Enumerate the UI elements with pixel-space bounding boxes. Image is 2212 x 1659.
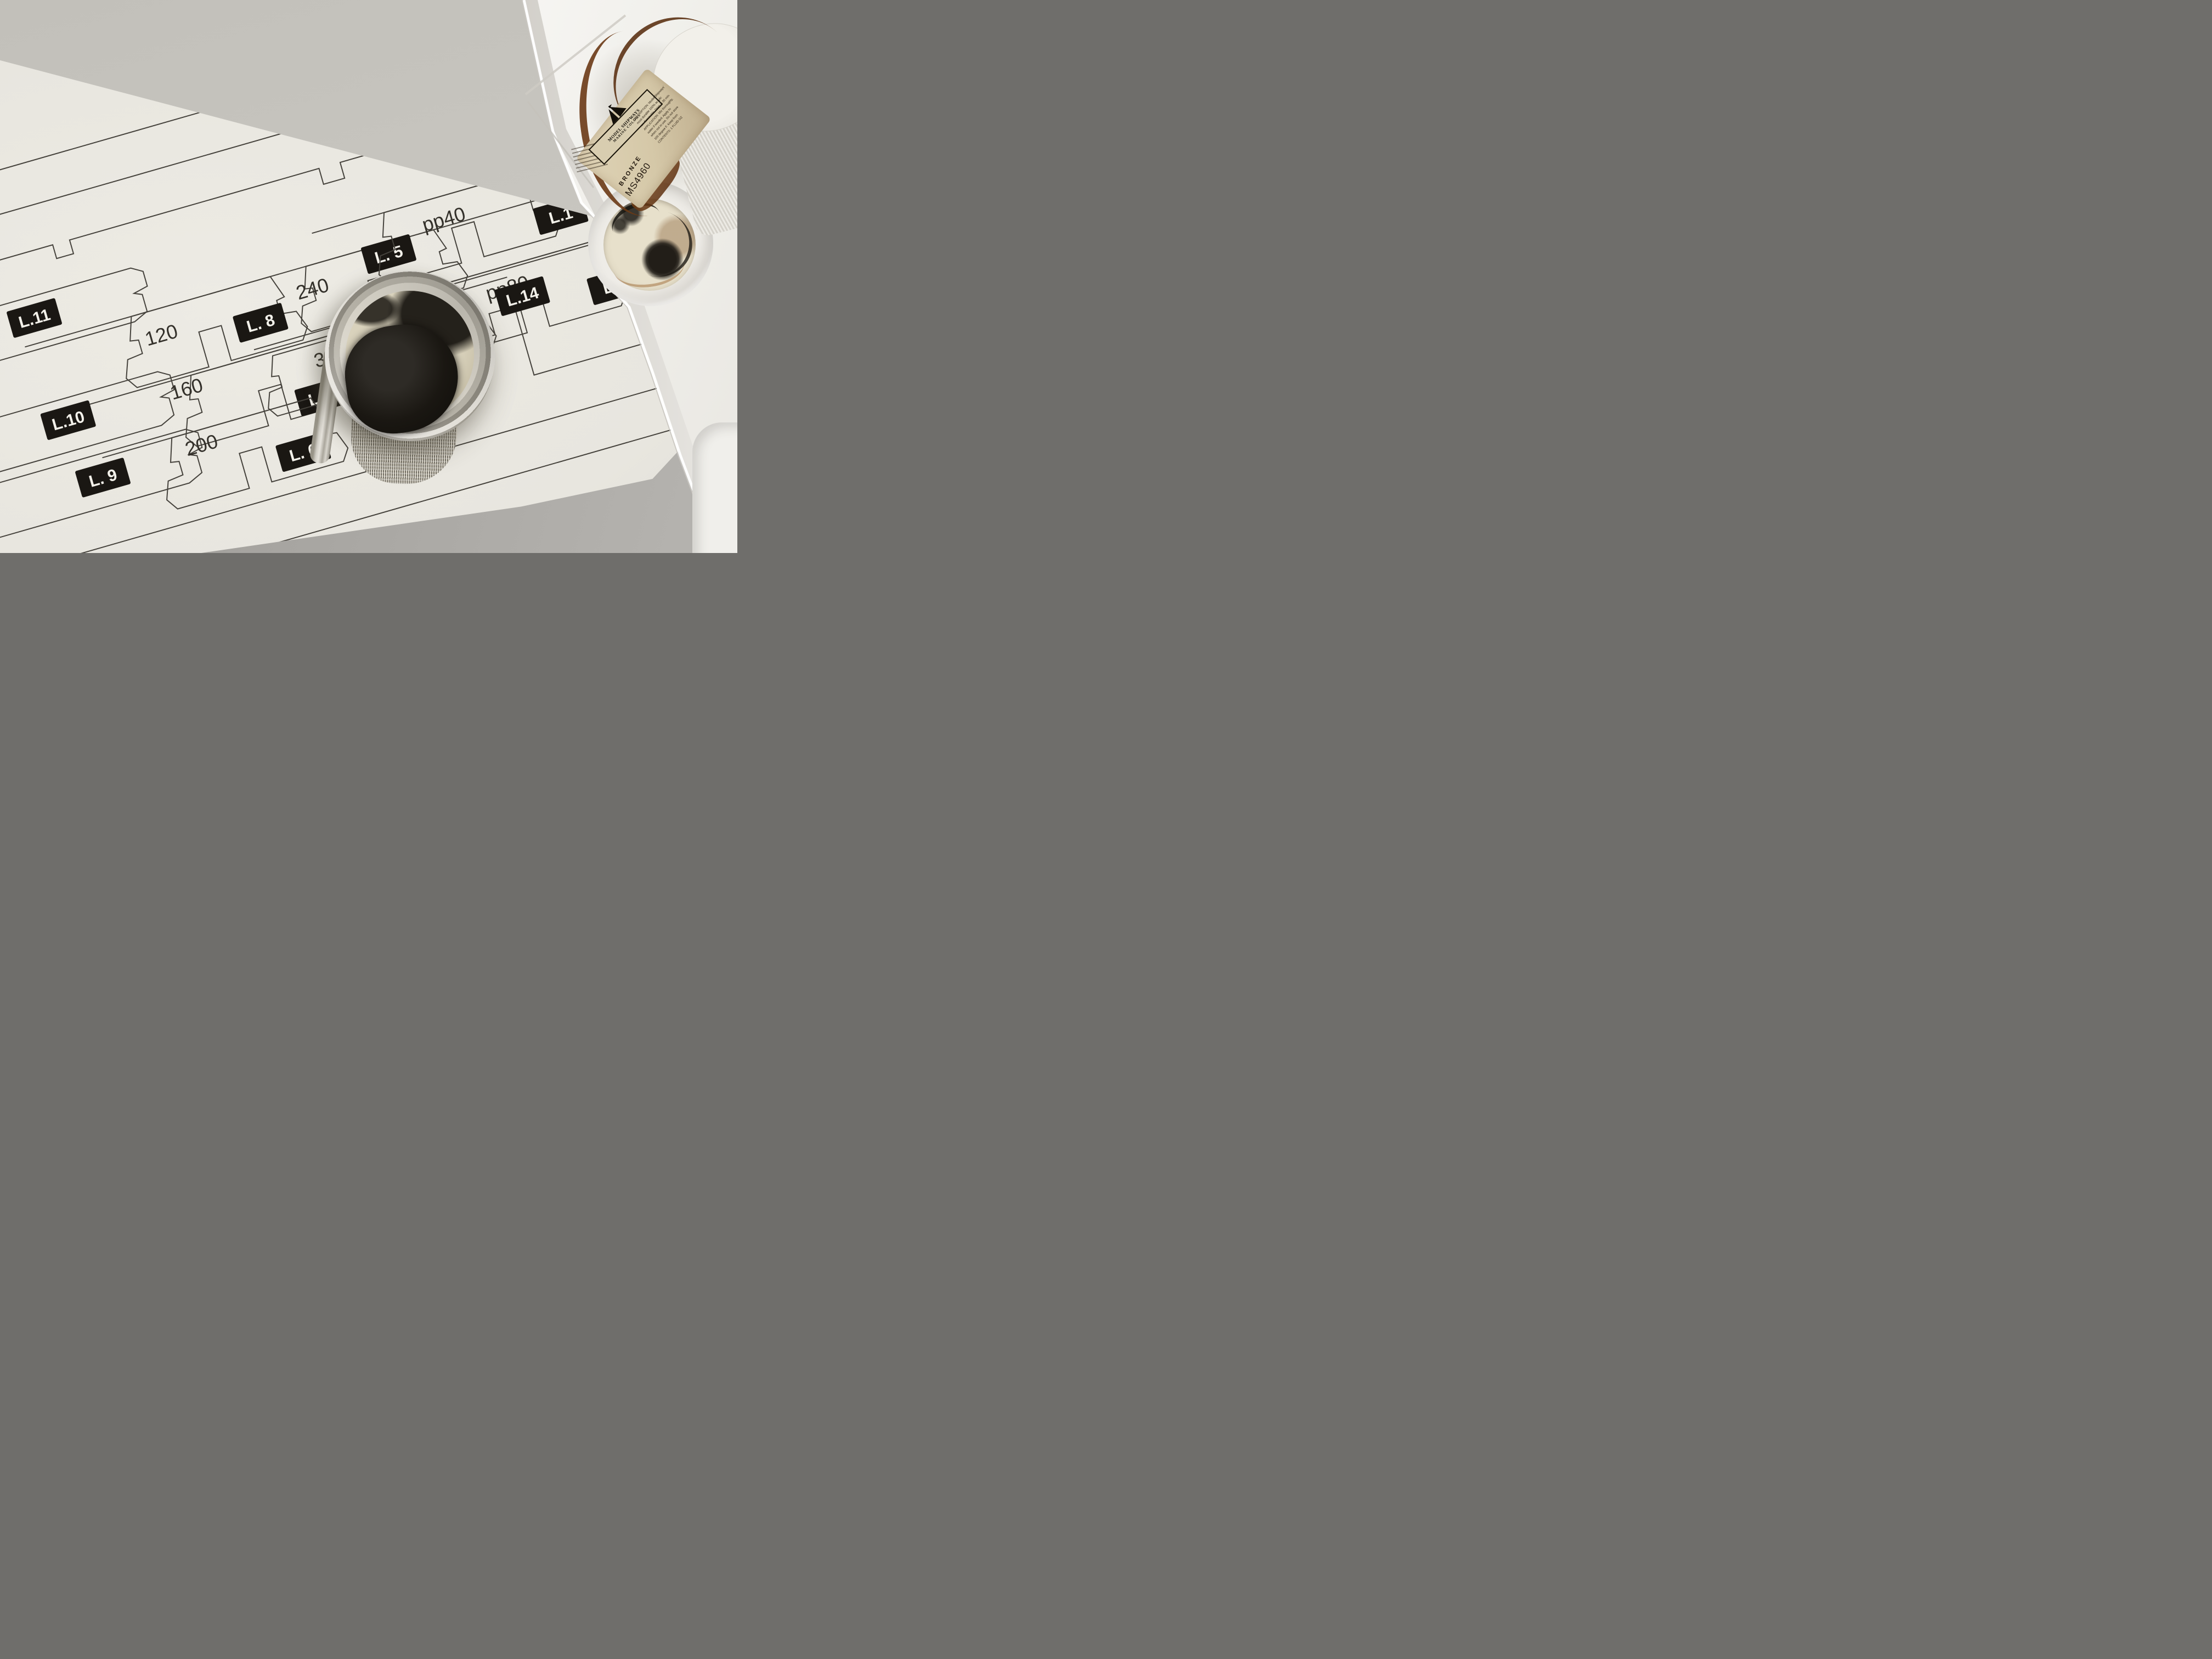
black-paint-jar: [313, 263, 510, 494]
tray-well-bottom: [692, 422, 737, 553]
scene: L.11 L.10 L. 9 120 L. 8 160: [0, 0, 737, 553]
paint-bottle: MODEL SHIPWAYS MARINE COLORS BRONZE MS49…: [571, 0, 737, 247]
